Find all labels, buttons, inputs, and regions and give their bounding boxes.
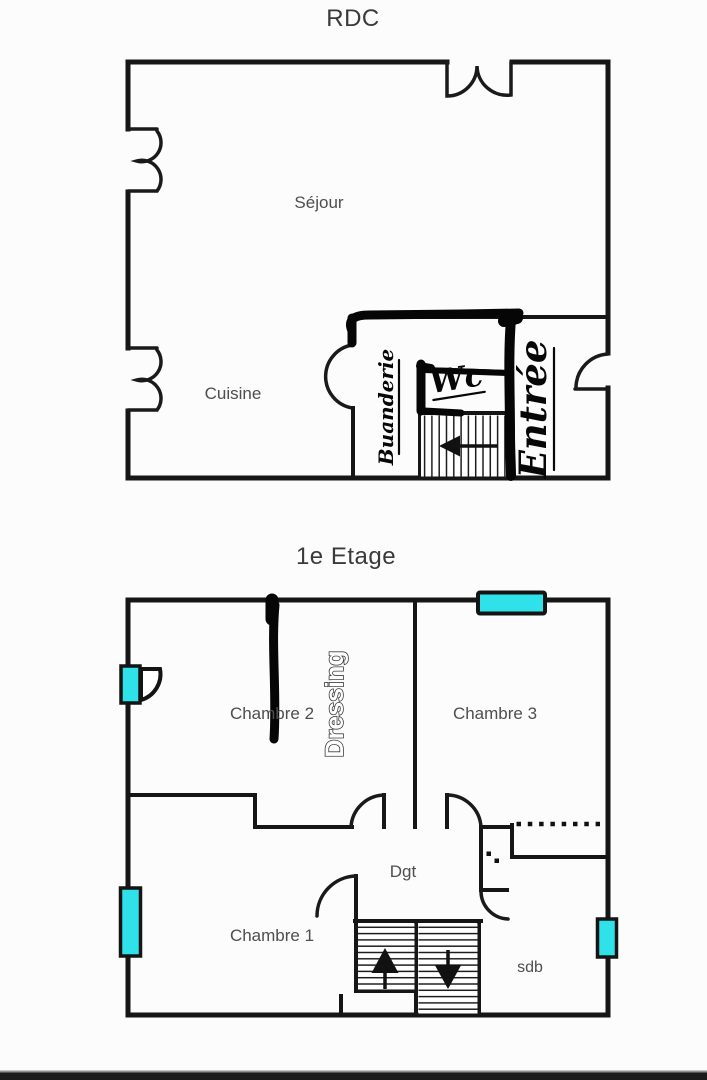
room-label-sejour: Séjour [294,193,343,212]
etage-title: 1e Etage [296,543,396,570]
rdc-plan: RDC [128,5,608,479]
left-door-fan-symbol [141,669,160,700]
rdc-left-window-symbol-upper [128,129,161,191]
room-label-cuisine: Cuisine [205,384,262,403]
chambre1-door-arc [317,876,356,916]
annotation-entree: Entrée [511,340,555,480]
room-label-chambre1: Chambre 1 [230,926,314,945]
room-label-sdb: sdb [517,959,543,976]
window-right-sdb-icon [598,919,617,957]
annotation-label-dressing: Dressing [321,651,349,758]
window-left-lower-icon [121,888,141,956]
etage-plan: 1e Etage [121,543,617,1015]
annotation-buanderie: Buanderie [374,349,399,467]
window-top-icon [478,593,545,614]
floor-plan-drawing: RDC [0,0,707,1080]
photo-bar-highlight [0,1071,707,1073]
annotation-label-wc: Wc [427,357,486,401]
sdb-door-arc [481,891,508,919]
rdc-entry-door-arc [575,354,608,389]
chambre3-door-arc [447,795,481,827]
rdc-left-window-symbol-lower [128,348,161,410]
annotation-label-buanderie: Buanderie [374,349,398,467]
room-label-chambre3: Chambre 3 [453,704,537,723]
rdc-title: RDC [326,5,380,32]
room-label-dgt: Dgt [390,862,417,881]
rdc-stairs [421,416,508,477]
rdc-cuisine-door-arc [326,345,352,408]
annotation-label-entree: Entrée [511,340,555,480]
room-label-chambre2: Chambre 2 [230,704,314,723]
annotation-dressing: Dressing [321,651,349,758]
etage-windows [121,593,617,958]
photo-bottom-bar [0,1071,707,1080]
rdc-top-double-door-symbol [447,62,511,96]
window-left-upper-icon [121,666,140,703]
dgt-left-door-arc [351,795,384,827]
photo-bar [0,1073,707,1080]
annotation-wc: Wc [427,357,486,401]
floor-plan-page: RDC [0,0,707,1080]
